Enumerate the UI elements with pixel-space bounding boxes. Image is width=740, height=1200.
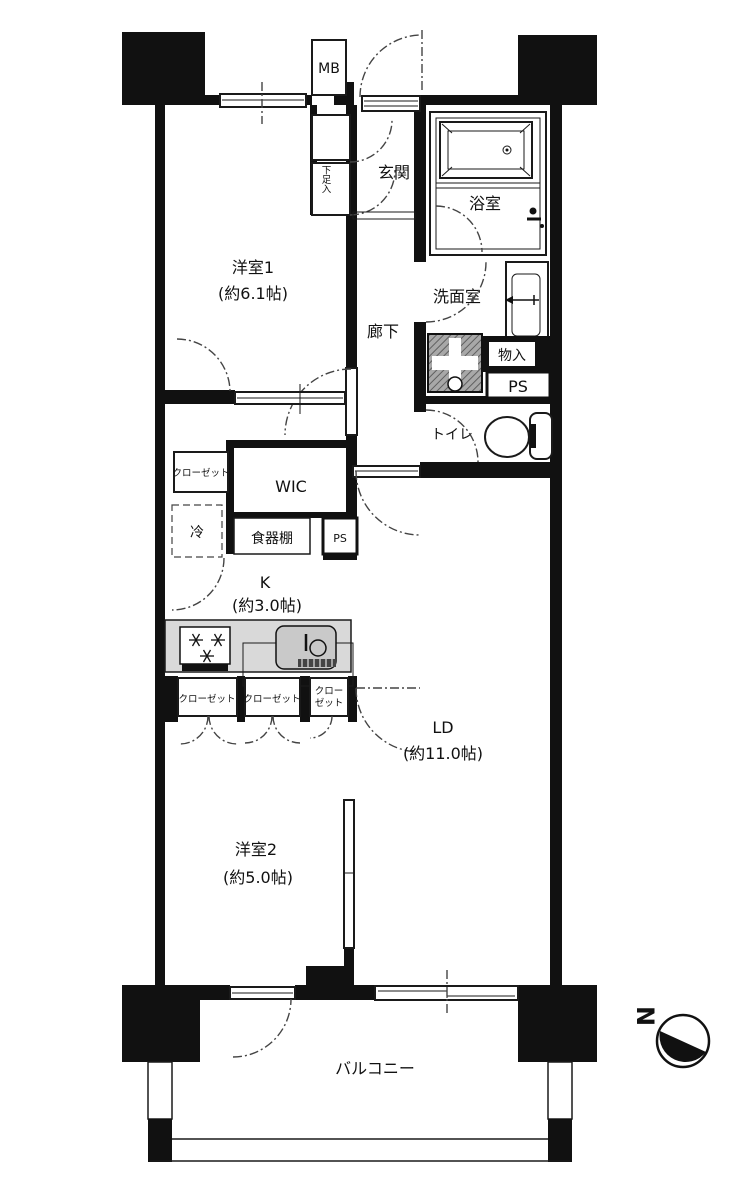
closet-door-arc bbox=[273, 716, 300, 743]
room1-door-leaf bbox=[346, 368, 357, 435]
ps-upper-label: PS bbox=[508, 377, 528, 396]
pillar-top-right bbox=[518, 35, 597, 105]
pillar-top-left bbox=[122, 32, 205, 105]
balcony-side-wall-left bbox=[148, 1062, 172, 1119]
bath-label: 浴室 bbox=[469, 194, 501, 213]
tub-drain-dot bbox=[506, 149, 509, 152]
closet-door-arc bbox=[245, 716, 272, 743]
closet-k1-label: クローゼット bbox=[178, 693, 235, 705]
toilet-bowl bbox=[485, 417, 529, 457]
shoe-cabinet-upper bbox=[312, 115, 350, 160]
pillar-bottom-right bbox=[518, 985, 597, 1062]
monoire-label: 物入 bbox=[498, 348, 526, 364]
kitchen-area: 食器棚 PS 冷 K (約3.0帖) bbox=[165, 505, 357, 686]
closet-door-arc bbox=[180, 716, 208, 744]
wall-right-outer bbox=[550, 105, 562, 985]
sink-grate bbox=[298, 659, 336, 667]
room1-name: 洋室1 bbox=[232, 258, 274, 277]
balcony-side-wall-right bbox=[548, 1062, 572, 1119]
wall-step bbox=[306, 966, 346, 985]
wall-corridor-bath bbox=[414, 105, 426, 262]
wall-bottom bbox=[295, 985, 375, 1000]
kitchen-size: (約3.0帖) bbox=[232, 596, 302, 615]
bathtub bbox=[440, 122, 532, 178]
pillar-bottom-left bbox=[122, 985, 200, 1062]
closet-door-arc bbox=[209, 716, 237, 744]
ld-size: (約11.0帖) bbox=[403, 744, 483, 763]
closet-row: クローゼット クローゼット クロー ゼット bbox=[178, 678, 420, 752]
wall-toilet-ld bbox=[420, 462, 562, 478]
room2-area: 洋室2 (約5.0帖) bbox=[223, 800, 354, 948]
wic-label: WIC bbox=[275, 477, 307, 496]
living-dining: LD (約11.0帖) bbox=[403, 718, 483, 763]
corridor-area: 廊下 bbox=[353, 322, 420, 535]
entry-door-swing-arc bbox=[360, 35, 422, 97]
room1-size: (約6.1帖) bbox=[218, 284, 288, 303]
room1-closet-door-arc bbox=[177, 339, 230, 392]
washroom-label: 洗面室 bbox=[433, 287, 481, 306]
wall bbox=[420, 95, 518, 105]
floorplan-svg: MB 下足入 玄関 浴室 洗面室 bbox=[0, 0, 740, 1200]
room2-name: 洋室2 bbox=[235, 840, 277, 859]
closet-k3-label-2: ゼット bbox=[315, 697, 344, 709]
kitchen-name: K bbox=[260, 573, 271, 592]
closet-k2-label: クローゼット bbox=[243, 693, 300, 705]
cupboard-label: 食器棚 bbox=[251, 530, 293, 547]
closet-k3-label-1: クロー bbox=[315, 686, 344, 697]
bathroom: 浴室 bbox=[430, 112, 546, 255]
ld-name: LD bbox=[432, 718, 453, 737]
balcony: バルコニー bbox=[148, 1059, 572, 1162]
toilet-tank-bar bbox=[530, 424, 536, 448]
fridge-label: 冷 bbox=[190, 525, 204, 541]
room1-closet-label: クローゼット bbox=[172, 467, 229, 479]
wall-bottom bbox=[200, 985, 230, 1000]
washroom: 洗面室 物入 PS bbox=[426, 262, 550, 398]
room2-balcony-door-arc bbox=[233, 999, 291, 1057]
entrance-area: MB 下足入 玄関 bbox=[312, 30, 422, 219]
shoe-cabinet-label: 下足入 bbox=[320, 165, 332, 194]
kitchen-door-arc bbox=[172, 558, 224, 610]
closet-door-arc bbox=[310, 716, 332, 738]
room2-door-arc bbox=[356, 688, 420, 752]
balcony-windows bbox=[230, 970, 518, 1057]
mb-label: MB bbox=[318, 61, 340, 77]
balcony-post-left bbox=[148, 1119, 172, 1162]
floorplan-canvas: MB 下足入 玄関 浴室 洗面室 bbox=[0, 0, 740, 1200]
wall-room1-bottom bbox=[165, 390, 235, 404]
wall bbox=[205, 95, 220, 105]
stove-grill bbox=[182, 664, 228, 671]
room2-size: (約5.0帖) bbox=[223, 868, 293, 887]
balcony-post-right bbox=[548, 1119, 572, 1162]
corridor-label: 廊下 bbox=[367, 322, 399, 341]
shoe-cabinet-lower bbox=[312, 163, 350, 215]
genkan-label: 玄関 bbox=[378, 163, 410, 182]
wall bbox=[165, 676, 178, 722]
compass: N bbox=[631, 1006, 709, 1067]
washer-pan-cross bbox=[432, 356, 478, 370]
washer-drain bbox=[448, 377, 462, 391]
room2-ld-partition bbox=[344, 800, 354, 948]
wall bbox=[300, 676, 310, 722]
balcony-label: バルコニー bbox=[335, 1059, 415, 1078]
ld-door-arc bbox=[356, 471, 420, 535]
wall-wic-top bbox=[233, 440, 357, 448]
north-label: N bbox=[631, 1006, 659, 1026]
entry-door bbox=[362, 96, 420, 111]
wall-left-outer bbox=[155, 105, 165, 985]
closet-k3 bbox=[310, 678, 348, 716]
ps-lower-label: PS bbox=[333, 532, 347, 545]
toilet-room: トイレ bbox=[426, 410, 552, 462]
